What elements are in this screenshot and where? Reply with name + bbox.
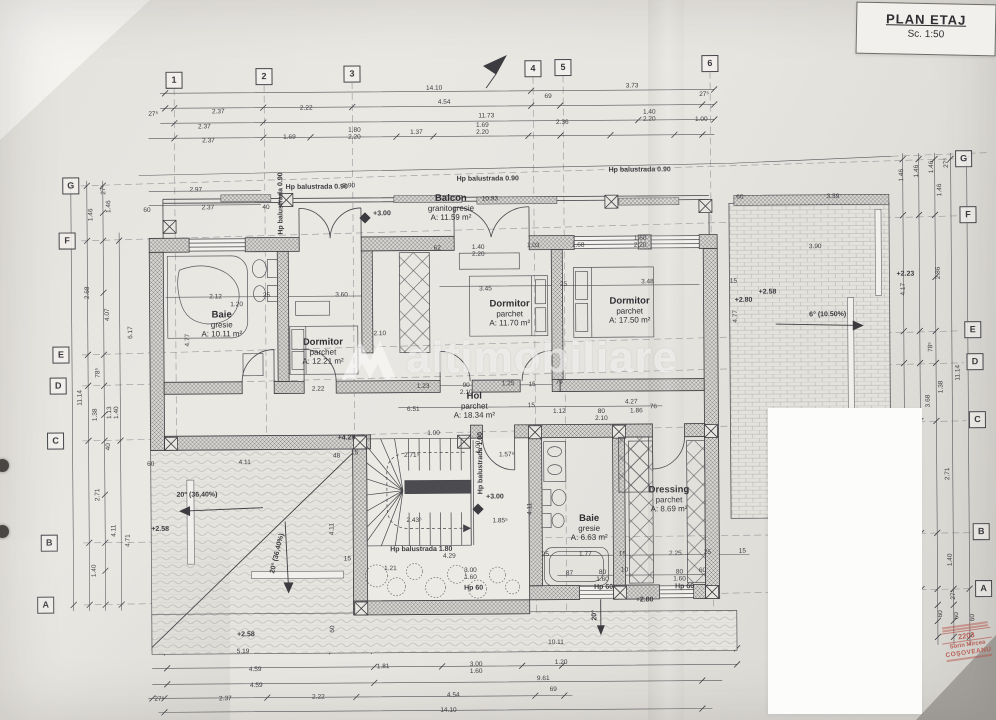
dimension-label: 2.86: [935, 267, 942, 280]
dimension-label: 3.68: [925, 395, 932, 408]
dimension-label: 2.22: [312, 386, 325, 393]
dimension-label: 27⁵: [148, 111, 158, 118]
dimension-label: 1.68: [572, 242, 585, 249]
dimension-label: 3.73: [626, 82, 639, 89]
dimension-label: 1.692.20: [476, 122, 489, 137]
dimension-label: 10.93: [482, 195, 498, 202]
dimension-label: 3.45: [479, 285, 492, 292]
dimension-label: 4.11: [526, 503, 533, 515]
annotation-label: Hp 60: [464, 585, 483, 592]
plan-scale: Sc. 1:50: [857, 28, 995, 42]
grid-bubble-C: C: [969, 411, 986, 428]
grid-bubble-A: A: [37, 597, 54, 614]
dimension-label: 1.40: [91, 564, 98, 577]
dimension-label: 1.602.20: [634, 235, 647, 250]
dimension-label: 60: [953, 612, 960, 619]
dimension-label: 2.10: [373, 330, 386, 337]
dimension-label: 27⁵: [699, 91, 709, 98]
dimension-label: 1.20: [555, 659, 568, 666]
dimension-label: 79: [556, 379, 563, 386]
grid-bubble-5: 5: [554, 59, 571, 76]
dimension-label: 4.59: [250, 682, 263, 689]
dimension-label: 802.10: [595, 408, 608, 423]
dimension-label: 2.37: [202, 204, 215, 211]
dimension-label: 78⁵: [94, 368, 101, 378]
dimension-label: 25: [560, 281, 567, 288]
grid-bubble-3: 3: [343, 65, 360, 82]
grid-bubble-C: C: [47, 433, 64, 450]
dimension-label: 1.46: [936, 184, 943, 197]
room-name: Baie: [571, 513, 608, 524]
dimension-label: 2.71: [94, 488, 101, 501]
room-name: Dormitor: [489, 298, 530, 309]
annotation-label: Hp 60: [594, 584, 613, 591]
annotation-label: Hp balustrada 1.80: [390, 546, 452, 553]
annotation-label: 20° (36,40%): [176, 491, 217, 498]
title-block: PLAN ETAJ Sc. 1:50: [856, 2, 996, 57]
annotation-label: 20° (36,40%): [269, 533, 285, 574]
dimension-label: 4.59: [249, 666, 262, 673]
dimension-label: 1.57⁵: [499, 451, 514, 458]
annotation-label: Hp balustrada 0.90: [277, 172, 284, 234]
dimension-label: 4.77: [184, 334, 191, 347]
room-label-dressing: DressingparchetA: 8.69 m²: [649, 484, 690, 513]
room-area: A: 11.59 m²: [428, 213, 474, 222]
dimension-label: 3.90: [809, 243, 822, 250]
dimension-label: 2.37: [198, 123, 211, 130]
room-area: A: 6.63 m²: [571, 533, 608, 542]
dimension-label: 10: [621, 566, 628, 573]
dimension-label: 4.11: [239, 459, 251, 466]
annotation-label: +2.58: [237, 631, 255, 638]
grid-bubble-E: E: [964, 321, 981, 338]
dimension-label: 60: [969, 614, 976, 621]
dimension-label: 4.77: [732, 310, 739, 323]
annotation-label: Hp balustrada 1.00: [477, 432, 484, 494]
room-name: Balcon: [428, 193, 474, 204]
dimension-label: 15: [739, 548, 746, 555]
annotation-label: 20°: [591, 610, 598, 621]
dimension-label: 15: [619, 550, 626, 557]
grid-bubble-B: B: [973, 523, 990, 540]
dimension-label: 2.22: [312, 694, 325, 701]
dimension-label: 78⁵: [927, 342, 934, 352]
annotation-label: +3.00: [486, 493, 504, 500]
dimension-label: 27⁵: [950, 590, 957, 600]
dimension-label: 60: [147, 461, 154, 468]
dimension-label: 1.03: [527, 242, 540, 249]
dimension-label: 27⁵: [943, 158, 950, 168]
plan-title: PLAN ETAJ: [857, 11, 995, 29]
grid-bubble-4: 4: [524, 60, 541, 77]
dimension-label: 2.37: [202, 137, 215, 144]
room-finish: gresie: [201, 320, 242, 329]
dimension-label: 1.46: [105, 200, 112, 213]
dimension-label: 2.68: [84, 287, 91, 300]
room-finish: parchet: [609, 306, 650, 315]
dimension-label: 1.85⁵: [492, 517, 507, 524]
room-area: A: 8.69 m²: [649, 504, 690, 513]
dimension-label: 4.17: [900, 283, 907, 296]
grid-bubble-E: E: [52, 346, 69, 363]
dimension-label: 60: [699, 567, 706, 574]
dimension-label: 801.60: [673, 568, 686, 583]
dimension-label: 2.71: [944, 468, 951, 481]
dimension-label: 1.46: [913, 165, 920, 178]
dimension-label: 5.19: [237, 648, 250, 655]
grid-bubble-B: B: [41, 535, 58, 552]
room-finish: parchet: [649, 495, 690, 504]
dimension-label: 14.10: [440, 707, 456, 714]
dimension-label: 3.39: [827, 193, 840, 200]
room-area: A: 17.50 m²: [609, 315, 650, 324]
dimension-label: 4.54: [438, 99, 451, 106]
dimension-label: 60: [736, 194, 743, 201]
grid-bubble-6: 6: [701, 55, 718, 72]
blueprint-photo: 123456GFEDCBAGFEDCBABaiegresieA: 10.11 m…: [0, 0, 996, 720]
dimension-label: 25: [263, 292, 270, 299]
dimension-label: 3.60: [335, 291, 348, 298]
room-finish: gresie: [571, 524, 608, 533]
annotation-label: +2.80: [735, 297, 753, 304]
room-area: A: 18.34 m²: [454, 411, 495, 420]
dimension-label: 62: [434, 245, 441, 252]
annotation-label: +2.58: [151, 526, 169, 533]
annotation-label: +2.58: [759, 289, 777, 296]
room-name: Dressing: [649, 484, 690, 495]
room-label-dormitor: DormitorparchetA: 12.21 m²: [302, 337, 344, 366]
dimension-label: 3.48: [641, 278, 654, 285]
room-area: A: 12.21 m²: [302, 357, 343, 366]
grid-bubble-F: F: [959, 206, 976, 223]
dimension-label: 27⁵: [154, 696, 164, 703]
dimension-label: 6.17: [127, 326, 134, 339]
dimension-label: 15: [529, 381, 536, 388]
dimension-label: 60: [329, 626, 336, 633]
dimension-label: 1.46: [898, 169, 905, 182]
dimension-label: 11.14: [77, 390, 84, 406]
dimension-label: 1.81: [377, 663, 390, 670]
annotation-label: +2.80: [636, 596, 654, 603]
room-area: A: 10.11 m²: [201, 329, 242, 338]
annotation-label: Hp balustrada 0.90: [286, 184, 348, 191]
annotation-label: Hp balustrada 0.90: [457, 175, 519, 182]
annotation-label: Hp balustrada 0.90: [609, 166, 671, 173]
annotation-label: Hp 60: [675, 583, 694, 590]
dimension-label: 3.001.60: [470, 661, 483, 676]
room-label-dormitor: DormitorparchetA: 17.50 m²: [609, 295, 651, 324]
dimension-label: 4.11: [329, 523, 336, 535]
white-cover-patch: [768, 408, 922, 714]
dimension-label: 2.37: [219, 695, 232, 702]
dimension-label: 40: [105, 443, 112, 450]
dimension-label: 1.46: [87, 208, 94, 221]
room-finish: parchet: [489, 309, 530, 318]
dimension-label: 1.77: [579, 551, 592, 558]
grid-bubble-G: G: [955, 150, 972, 167]
dimension-label: 10.11: [548, 639, 564, 646]
dimension-label: 4.71: [125, 534, 132, 547]
room-name: Baie: [201, 309, 242, 320]
dimension-label: 4.07: [104, 308, 111, 321]
grid-bubble-G: G: [62, 177, 79, 194]
dimension-label: 60: [937, 610, 944, 617]
annotation-label: +2.23: [897, 271, 915, 278]
dimension-label: 11.73: [478, 112, 494, 119]
dimension-label: 1.40: [947, 553, 954, 566]
room-name: Dormitor: [302, 337, 343, 348]
dimension-label: 9.61: [537, 675, 550, 682]
dimension-label: 1.402.20: [643, 109, 656, 124]
dimension-label: 1.131.40: [106, 406, 121, 419]
dimension-label: 1.86: [630, 407, 643, 414]
dimension-label: 69: [545, 93, 552, 100]
dimension-label: 40: [262, 204, 269, 211]
dimension-label: 801.60: [596, 569, 609, 584]
dimension-label: 2.12: [209, 293, 222, 300]
dimension-label: 1.402.20: [472, 244, 485, 259]
dimension-label: 69: [550, 686, 557, 693]
dimension-label: 1.12: [553, 408, 566, 415]
room-finish: granitogresie: [428, 204, 474, 213]
dimension-label: 2.71⁵: [404, 452, 419, 459]
dimension-label: 1.46: [928, 161, 935, 174]
room-finish: parchet: [454, 402, 495, 411]
dimension-label: 1.00: [695, 116, 708, 123]
dimension-label: 15: [351, 449, 358, 456]
dimension-label: 1.69: [283, 134, 296, 141]
dimension-label: 1.38: [92, 408, 99, 421]
dimension-label: 2.22: [300, 105, 313, 112]
dimension-label: 1.37: [410, 129, 423, 136]
dimension-label: 4.27: [625, 398, 638, 405]
dimension-label: 14.10: [426, 85, 442, 92]
dimension-label: 4.11: [111, 525, 118, 537]
room-label-dormitor: DormitorparchetA: 11.70 m²: [489, 298, 530, 327]
dimension-label: 76: [650, 403, 657, 410]
grid-bubble-F: F: [59, 232, 76, 249]
dimension-label: 2.25: [669, 550, 682, 557]
grid-bubble-D: D: [966, 353, 983, 370]
dimension-label: 15: [528, 402, 535, 409]
dimension-label: 1.20: [230, 301, 243, 308]
dimension-label: 11.14: [954, 365, 961, 381]
dimension-label: 6.51: [407, 406, 420, 413]
dimension-label: 2.43⁵: [406, 517, 421, 524]
annotation-label: +3.00: [373, 210, 391, 217]
dimension-label: 2.37: [212, 108, 225, 115]
annotation-label: 6° (10.50%): [809, 311, 846, 318]
dimension-label: 3.001.60: [464, 567, 477, 582]
grid-bubble-A: A: [975, 580, 992, 597]
room-label-baie: BaiegresieA: 6.63 m²: [571, 513, 608, 542]
grid-bubble-2: 2: [255, 68, 272, 85]
dimension-label: 25: [704, 549, 711, 556]
room-finish: parchet: [302, 348, 343, 357]
room-label-baie: BaiegresieA: 10.11 m²: [201, 309, 242, 338]
room-label-hol: HolparchetA: 18.34 m²: [454, 391, 496, 420]
dimension-label: 1.802.20: [348, 127, 361, 142]
room-name: Dormitor: [609, 295, 650, 306]
architect-stamp: 2203 Sorin Mircea COŞOVEANU: [938, 620, 996, 691]
annotation-label: +4.29: [338, 434, 356, 441]
dimension-label: 15: [730, 278, 737, 285]
dimension-label: 27⁵: [100, 185, 107, 195]
dimension-label: 60: [143, 207, 150, 214]
room-name: Hol: [454, 391, 495, 402]
dimension-label: 15: [344, 555, 351, 562]
grid-bubble-1: 1: [165, 72, 182, 89]
dimension-label: 87: [566, 570, 573, 577]
dimension-label: 4.54: [447, 692, 460, 699]
dimension-label: 2.36: [556, 119, 569, 126]
dimension-label: 48: [333, 452, 340, 459]
grid-bubble-D: D: [50, 378, 67, 395]
dimension-label: 4.29: [443, 553, 456, 560]
dimension-label: 25: [542, 551, 549, 558]
room-area: A: 11.70 m²: [489, 318, 530, 327]
dimension-label: 1.38: [938, 381, 945, 394]
dimension-label: 1.23: [417, 383, 430, 390]
dimension-label: 2.97: [189, 186, 202, 193]
dimension-label: 1.00: [427, 430, 440, 437]
dimension-label: 1.25: [502, 380, 515, 387]
room-label-balcon: BalcongranitogresieA: 11.59 m²: [428, 193, 474, 222]
dimension-label: 1.21: [384, 565, 397, 572]
